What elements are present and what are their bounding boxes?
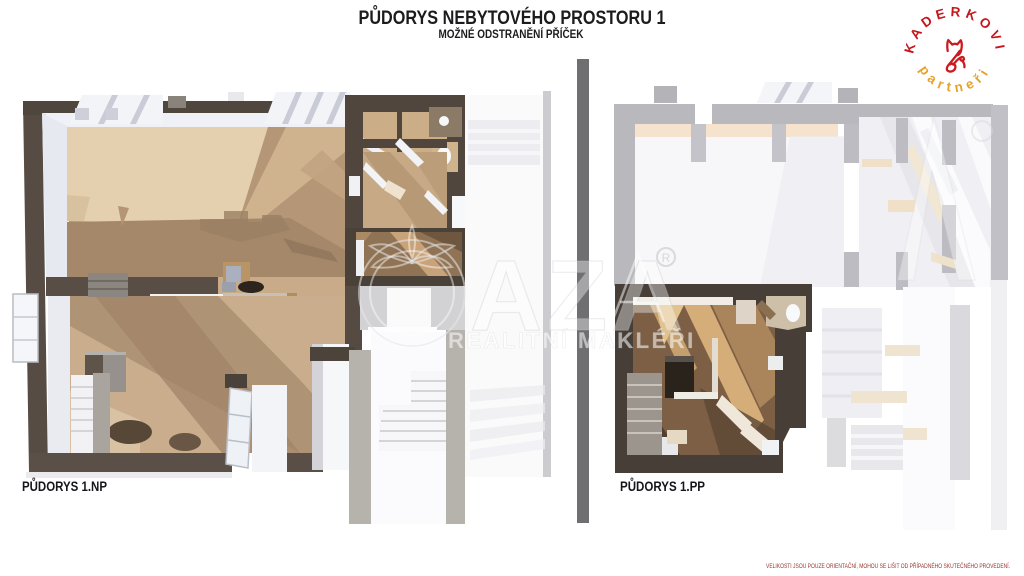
- svg-text:R: R: [662, 251, 671, 265]
- svg-text:MOŽNÉ ODSTRANĚNÍ PŘÍČEK: MOŽNÉ ODSTRANĚNÍ PŘÍČEK: [439, 28, 585, 41]
- svg-text:REALITNÍ MAKLÉŘI: REALITNÍ MAKLÉŘI: [448, 328, 696, 353]
- svg-text:VELIKOSTI JSOU POUZE ORIENTAČN: VELIKOSTI JSOU POUZE ORIENTAČNÍ, MOHOU S…: [766, 561, 1010, 570]
- svg-text:PŮDORYS 1.PP: PŮDORYS 1.PP: [620, 478, 705, 494]
- svg-text:PŮDORYS NEBYTOVÉHO PROSTORU 1: PŮDORYS NEBYTOVÉHO PROSTORU 1: [359, 3, 666, 29]
- svg-text:PŮDORYS 1.NP: PŮDORYS 1.NP: [22, 478, 107, 494]
